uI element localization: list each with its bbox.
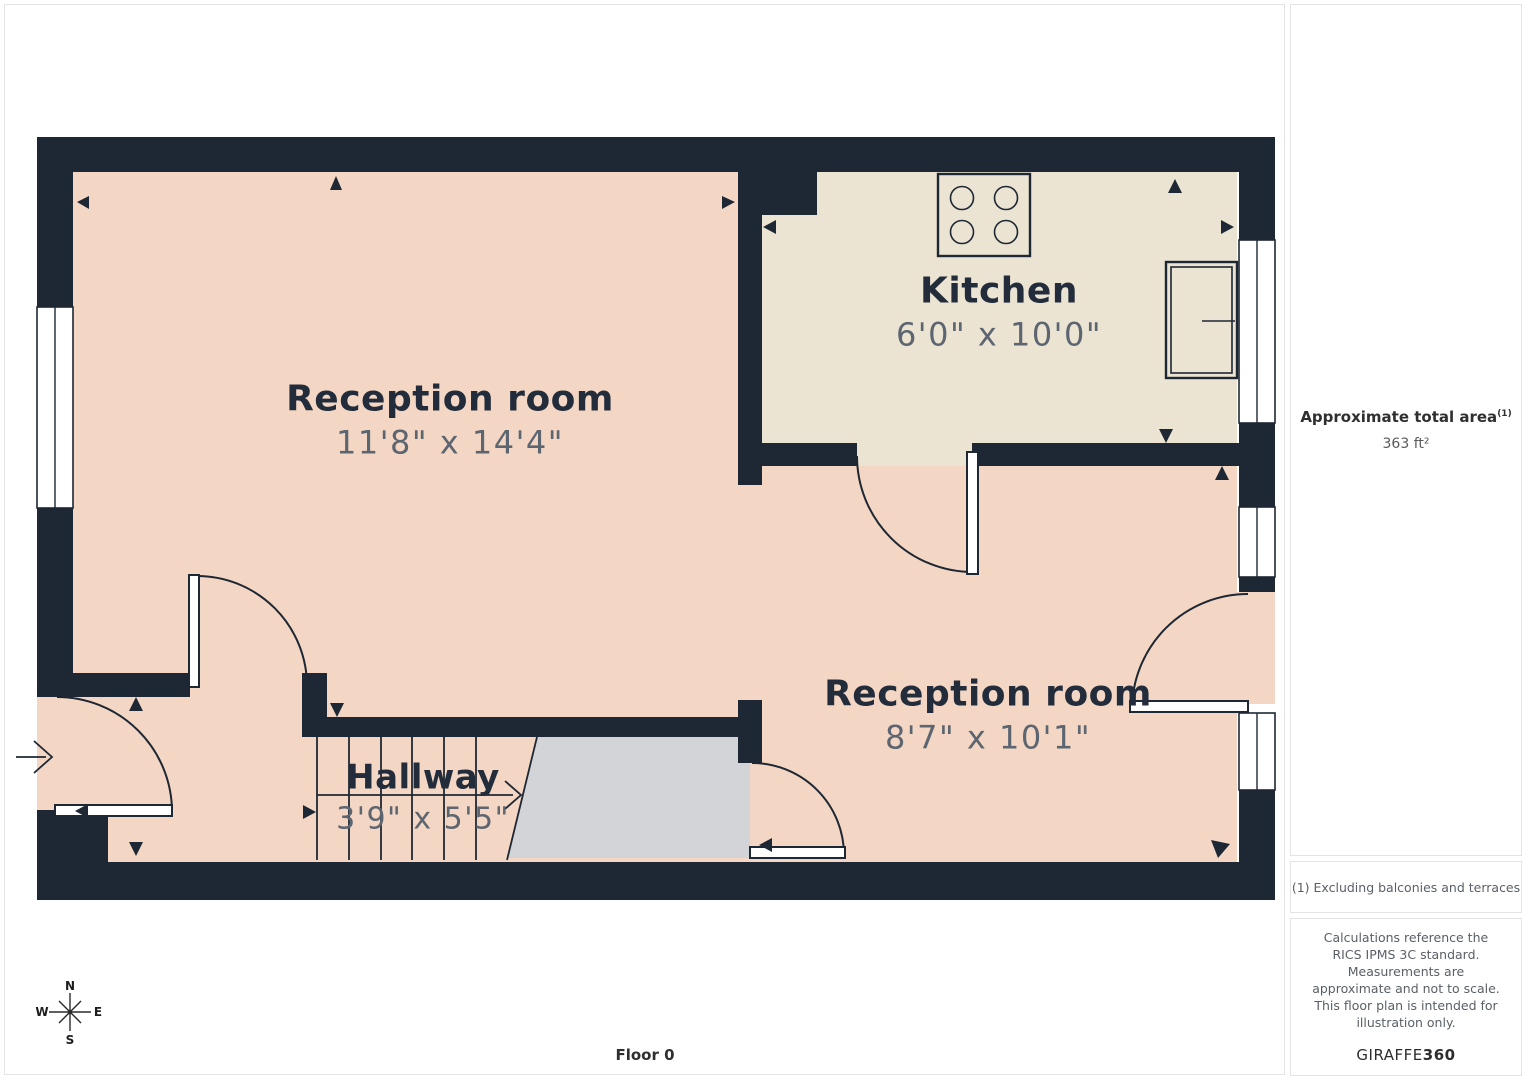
compass-south: S xyxy=(66,1033,75,1047)
stair-void xyxy=(507,737,750,858)
giraffe360-logo: GIRAFFE360 xyxy=(1356,1046,1455,1064)
stove-icon xyxy=(938,174,1030,256)
window xyxy=(1239,507,1275,577)
compass-icon: N S E W xyxy=(35,979,102,1047)
footnote-text: (1) Excluding balconies and terraces xyxy=(1292,880,1520,895)
disclaimer-text: Calculations reference the RICS IPMS 3C … xyxy=(1311,930,1501,1031)
compass-west: W xyxy=(35,1005,48,1019)
sidebar-disclaimer-panel: Calculations reference the RICS IPMS 3C … xyxy=(1290,918,1522,1076)
sidebar-area-panel: Approximate total area(1) 363 ft² xyxy=(1290,4,1522,856)
window xyxy=(37,307,73,508)
area-value: 363 ft² xyxy=(1383,436,1430,452)
compass-north: N xyxy=(65,979,75,993)
sink-counter-icon xyxy=(1166,262,1237,378)
window xyxy=(1239,713,1275,790)
floor-areas xyxy=(37,172,1275,862)
compass-east: E xyxy=(94,1005,102,1019)
floor-label: Floor 0 xyxy=(615,1046,674,1064)
area-title: Approximate total area(1) xyxy=(1300,408,1511,426)
window xyxy=(1239,240,1275,423)
floor-plan-page: N S E W Reception room 11'8" x 14'4" Kit… xyxy=(0,0,1527,1080)
area-note-ref: (1) xyxy=(1497,409,1512,419)
sidebar-footnote-panel: (1) Excluding balconies and terraces xyxy=(1290,861,1522,913)
